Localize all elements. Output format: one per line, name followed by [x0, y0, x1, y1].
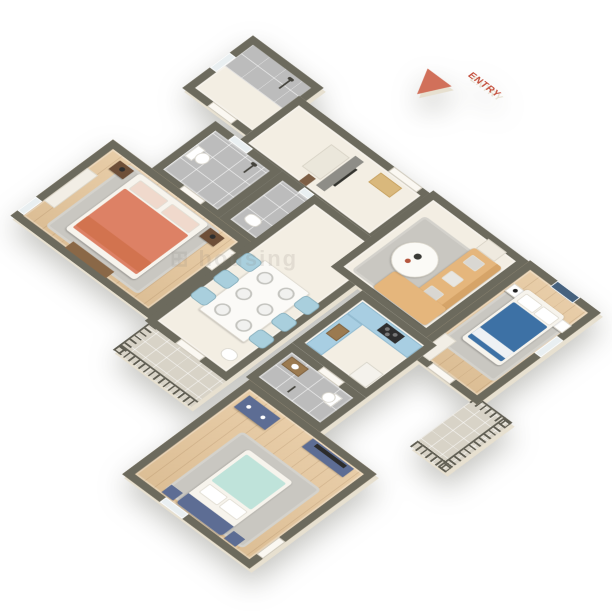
plate: [232, 317, 256, 335]
window: [18, 197, 43, 215]
shower-pipe-icon: [243, 165, 254, 173]
tv-icon: [314, 444, 347, 469]
dining-table: [199, 260, 311, 343]
entry-label: ENTRY: [465, 71, 503, 99]
table-decor: [412, 252, 423, 260]
decor-icon: [512, 288, 519, 293]
isometric-wrapper: ENTRY: [0, 0, 612, 612]
dresser: [234, 395, 281, 430]
tv-console: [302, 438, 354, 477]
fridge: [348, 362, 383, 388]
door: [207, 102, 237, 125]
lamp-icon: [118, 166, 126, 172]
plate: [232, 285, 256, 303]
washbasin: [242, 212, 265, 229]
plate: [211, 301, 235, 319]
stove-icon: [377, 323, 405, 344]
balcony-east: [410, 396, 513, 472]
floor-plan-scene: ENTRY ⊞ housing: [0, 0, 612, 612]
entry-arrow-icon: [405, 68, 452, 103]
washbasin: [290, 363, 301, 371]
knob-icon: [259, 415, 266, 420]
burner-icon: [392, 332, 399, 337]
plate: [274, 285, 298, 303]
pillow: [441, 270, 464, 287]
balcony-railing: [438, 417, 513, 473]
pillow: [462, 255, 485, 272]
knob-icon: [245, 404, 252, 409]
shower-pipe-icon: [287, 386, 296, 393]
door: [257, 537, 286, 559]
wall-art: [550, 281, 580, 304]
burner-icon: [384, 332, 391, 337]
lamp-icon: [208, 233, 216, 239]
kitchen-counter-sink: [306, 313, 363, 355]
plate: [253, 301, 277, 319]
table-decor: [404, 258, 412, 264]
vanity: [281, 356, 309, 376]
balcony-railing: [113, 344, 199, 408]
burner-icon: [384, 326, 391, 331]
tv-icon: [333, 168, 358, 186]
floor-plan: ENTRY: [0, 25, 612, 603]
door: [427, 363, 456, 385]
sink-icon: [326, 323, 350, 341]
washbasin: [218, 346, 241, 363]
watermark: ⊞ housing: [170, 246, 390, 272]
